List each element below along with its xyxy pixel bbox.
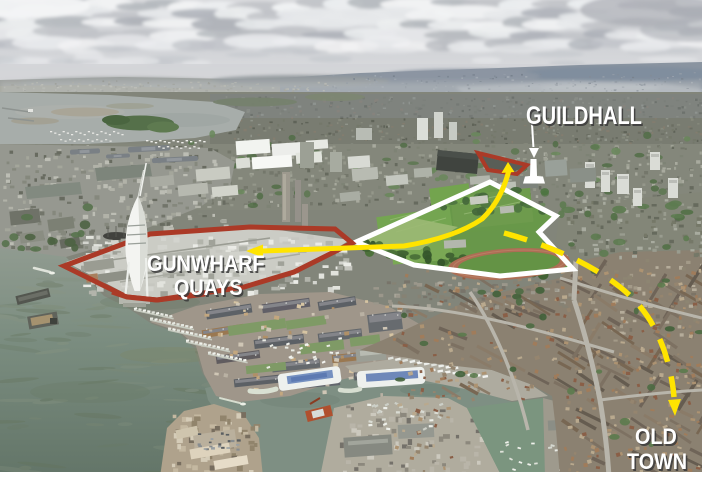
svg-text:GUILDHALL: GUILDHALL [526, 101, 642, 130]
svg-text:OLD: OLD [635, 425, 677, 449]
svg-text:QUAYS: QUAYS [174, 276, 243, 300]
svg-text:TOWN: TOWN [627, 450, 687, 474]
svg-text:GUNWHARF: GUNWHARF [147, 252, 265, 276]
